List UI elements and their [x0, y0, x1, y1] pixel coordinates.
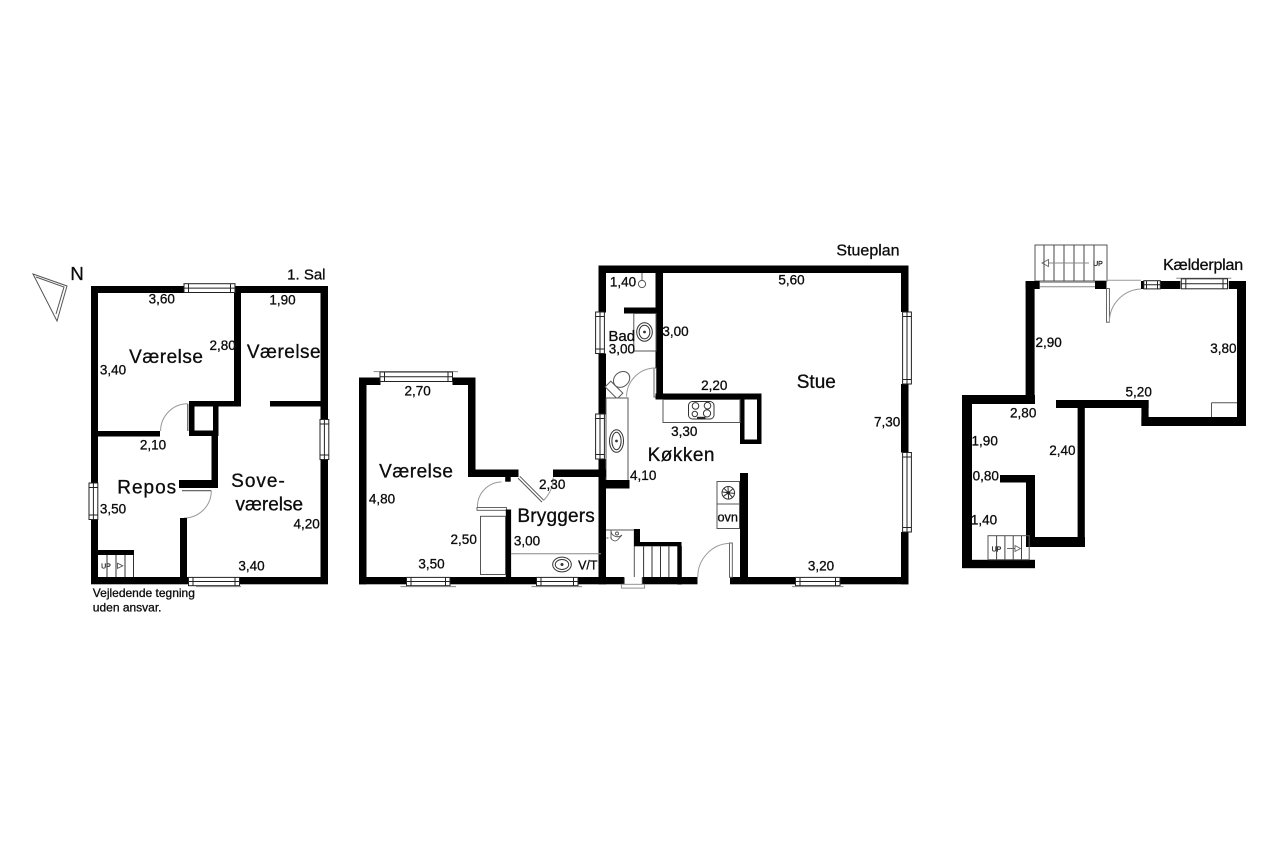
svg-text:3,30: 3,30 [671, 424, 697, 439]
svg-text:Stue: Stue [797, 372, 836, 393]
svg-text:2,70: 2,70 [404, 384, 430, 399]
svg-text:Værelse: Værelse [247, 342, 321, 363]
svg-text:7,30: 7,30 [874, 415, 900, 430]
svg-text:4,10: 4,10 [630, 468, 656, 483]
svg-text:2,40: 2,40 [1049, 443, 1075, 458]
svg-text:3,40: 3,40 [100, 363, 126, 378]
svg-text:5,20: 5,20 [1126, 385, 1152, 400]
svg-text:Sove-: Sove- [231, 471, 286, 492]
svg-text:0,80: 0,80 [973, 468, 999, 483]
svg-text:3,00: 3,00 [514, 533, 540, 548]
svg-text:3,20: 3,20 [808, 558, 834, 573]
svg-text:2,10: 2,10 [140, 437, 166, 452]
svg-text:UP: UP [1093, 261, 1103, 268]
svg-text:Værelse: Værelse [379, 462, 453, 483]
svg-text:værelse: værelse [236, 494, 304, 515]
svg-text:2,30: 2,30 [539, 477, 565, 492]
svg-text:3,60: 3,60 [149, 292, 175, 307]
svg-text:uden ansvar.: uden ansvar. [93, 601, 162, 615]
svg-text:4,80: 4,80 [369, 491, 395, 506]
svg-text:Repos: Repos [117, 478, 177, 499]
svg-text:Køkken: Køkken [648, 445, 715, 466]
svg-text:1,40: 1,40 [971, 513, 997, 528]
svg-text:Stueplan: Stueplan [836, 242, 899, 259]
svg-text:3,40: 3,40 [238, 559, 264, 574]
svg-text:2,80: 2,80 [209, 338, 235, 353]
svg-text:1,90: 1,90 [972, 434, 998, 449]
svg-text:Værelse: Værelse [129, 347, 203, 368]
svg-text:1. Sal: 1. Sal [287, 267, 325, 284]
svg-text:3,00: 3,00 [609, 342, 635, 357]
svg-text:2,80: 2,80 [1010, 405, 1036, 420]
svg-text:2,20: 2,20 [701, 378, 727, 393]
svg-text:3,50: 3,50 [418, 556, 444, 571]
svg-text:3,00: 3,00 [662, 324, 688, 339]
svg-text:Vejledende tegning: Vejledende tegning [93, 586, 195, 600]
svg-text:N: N [70, 263, 83, 284]
svg-text:5,60: 5,60 [778, 273, 804, 288]
svg-text:1,90: 1,90 [269, 292, 295, 307]
svg-text:UP: UP [992, 547, 1002, 554]
svg-text:1,40: 1,40 [610, 274, 636, 289]
svg-text:3,80: 3,80 [1210, 341, 1236, 356]
svg-text:ovn: ovn [717, 511, 737, 525]
svg-text:3,50: 3,50 [100, 502, 126, 517]
svg-text:2,90: 2,90 [1035, 335, 1061, 350]
svg-text:4,20: 4,20 [293, 517, 319, 532]
svg-text:Bryggers: Bryggers [517, 506, 595, 527]
svg-text:Kælderplan: Kælderplan [1163, 257, 1243, 274]
svg-text:2,50: 2,50 [451, 532, 477, 547]
svg-text:UP: UP [101, 564, 111, 571]
svg-text:V/T: V/T [578, 558, 598, 572]
